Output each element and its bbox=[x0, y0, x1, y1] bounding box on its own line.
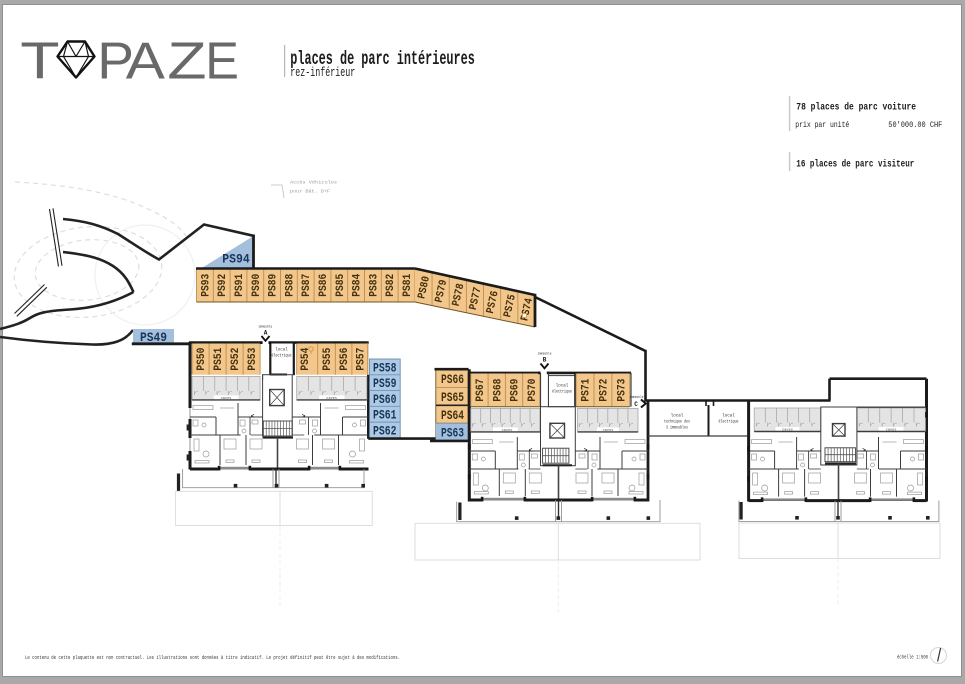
svg-text:local: local bbox=[556, 384, 569, 389]
svg-text:PS89: PS89 bbox=[268, 274, 280, 297]
svg-text:PS70: PS70 bbox=[527, 379, 539, 402]
svg-text:PS90: PS90 bbox=[251, 274, 263, 297]
svg-text:PS64: PS64 bbox=[441, 408, 464, 423]
svg-text:prix par unité: prix par unité bbox=[795, 120, 849, 130]
svg-text:local: local bbox=[671, 414, 684, 419]
svg-text:PS84: PS84 bbox=[352, 273, 364, 296]
svg-text:PS73: PS73 bbox=[616, 378, 628, 401]
svg-text:PS82: PS82 bbox=[385, 274, 397, 297]
svg-text:échelle 1:500: échelle 1:500 bbox=[897, 654, 928, 661]
svg-text:A: A bbox=[264, 330, 268, 337]
svg-text:PS50: PS50 bbox=[196, 348, 208, 371]
svg-text:PS67: PS67 bbox=[475, 379, 487, 402]
svg-text:A: A bbox=[126, 32, 165, 90]
svg-text:PS56: PS56 bbox=[339, 348, 351, 371]
svg-text:PS71: PS71 bbox=[581, 378, 593, 401]
svg-text:PS92: PS92 bbox=[217, 274, 229, 297]
svg-text:rez-inférieur: rez-inférieur bbox=[290, 65, 355, 80]
svg-text:électrique: électrique bbox=[719, 420, 739, 425]
svg-text:3 immeubles: 3 immeubles bbox=[666, 426, 688, 431]
svg-text:PS66: PS66 bbox=[441, 372, 464, 387]
svg-text:PS55: PS55 bbox=[322, 347, 334, 370]
svg-text:Le contenu de cette plaquette: Le contenu de cette plaquette est non co… bbox=[25, 654, 400, 661]
svg-text:PS52: PS52 bbox=[230, 348, 242, 371]
svg-text:Accès Véhicules: Accès Véhicules bbox=[290, 180, 337, 186]
svg-text:50'000.00 CHF: 50'000.00 CHF bbox=[888, 120, 942, 130]
svg-text:PS93: PS93 bbox=[200, 273, 212, 296]
svg-text:PS57: PS57 bbox=[355, 348, 367, 371]
svg-text:PS63: PS63 bbox=[441, 426, 464, 441]
svg-text:PS62: PS62 bbox=[373, 424, 397, 439]
svg-text:Z: Z bbox=[167, 33, 206, 90]
svg-text:PS83: PS83 bbox=[368, 273, 380, 296]
svg-text:PS53: PS53 bbox=[247, 347, 259, 370]
svg-text:>: > bbox=[584, 447, 588, 454]
svg-text:PS61: PS61 bbox=[373, 408, 397, 423]
svg-text:PS68: PS68 bbox=[492, 378, 504, 401]
svg-text:>: > bbox=[862, 447, 866, 454]
svg-text:PS59: PS59 bbox=[373, 376, 397, 391]
svg-text:technique des: technique des bbox=[664, 420, 690, 425]
svg-text:PS94: PS94 bbox=[222, 252, 250, 267]
svg-text:<: < bbox=[810, 447, 814, 454]
svg-text:PS60: PS60 bbox=[373, 392, 397, 407]
svg-text:local: local bbox=[275, 348, 288, 353]
svg-text:pour Bât. D+F: pour Bât. D+F bbox=[290, 189, 330, 195]
svg-text:B: B bbox=[543, 357, 547, 364]
svg-text:PS91: PS91 bbox=[234, 273, 246, 296]
svg-text:PS72: PS72 bbox=[598, 379, 610, 402]
svg-text:électrique: électrique bbox=[272, 354, 292, 359]
svg-text:PS87: PS87 bbox=[301, 274, 313, 297]
svg-text:E: E bbox=[205, 32, 239, 90]
svg-text:local: local bbox=[722, 414, 735, 419]
svg-text:électrique: électrique bbox=[552, 390, 572, 395]
svg-text:C: C bbox=[634, 401, 638, 408]
svg-text:PS88: PS88 bbox=[284, 273, 296, 296]
svg-text:PS86: PS86 bbox=[318, 274, 330, 297]
svg-text:<: < bbox=[251, 413, 255, 420]
svg-text:T: T bbox=[20, 33, 59, 90]
svg-text:>: > bbox=[302, 413, 306, 420]
svg-text:PS69: PS69 bbox=[510, 379, 522, 402]
svg-text:PS85: PS85 bbox=[335, 273, 347, 296]
svg-text:<: < bbox=[529, 447, 533, 454]
svg-text:78 places de parc voiture: 78 places de parc voiture bbox=[796, 102, 916, 114]
svg-text:16 places de parc visiteur: 16 places de parc visiteur bbox=[796, 159, 914, 171]
svg-text:PS51: PS51 bbox=[213, 347, 225, 370]
svg-text:PS81: PS81 bbox=[402, 273, 414, 296]
svg-text:PS58: PS58 bbox=[373, 360, 397, 375]
svg-text:PS65: PS65 bbox=[441, 390, 464, 405]
